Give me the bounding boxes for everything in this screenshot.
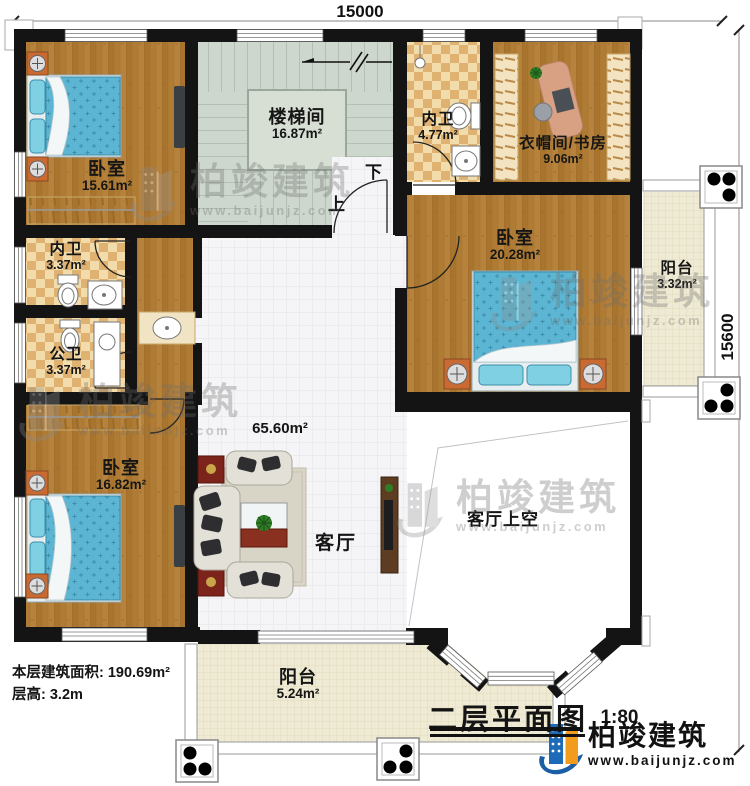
brand-block: 柏竣建筑 www.baijunjz.com <box>588 722 737 768</box>
title-underline-2 <box>430 734 585 737</box>
living-area-value: 65.60m² <box>252 420 308 437</box>
bed-tl <box>27 75 121 157</box>
floor-stats: 本层建筑面积: 190.69m² 层高: 3.2m <box>12 662 170 707</box>
room-label-living: 客厅 <box>315 528 357 555</box>
room-label-balcony-bottom: 阳台5.24m² <box>277 668 320 702</box>
title-underline <box>430 727 582 731</box>
room-label-bedroom-right: 卧室20.28m² <box>490 229 540 263</box>
room-label-cloak-study: 衣帽间/书房9.06m² <box>519 136 607 166</box>
room-label-bedroom-bl: 卧室16.82m² <box>96 459 146 493</box>
bed-right <box>472 271 578 391</box>
floor-height-text: 层高: 3.2m <box>12 684 170 706</box>
floor-plan-page: 15000 15600 楼梯间16.87m² 内卫4.77m² 衣帽间/书房9.… <box>0 0 750 786</box>
room-label-balcony-right: 阳台3.32m² <box>657 261 697 291</box>
room-label-bath-top: 内卫4.77m² <box>418 112 458 142</box>
stairs-up-label: 上 <box>328 190 345 215</box>
room-label-living-void: 客厅上空 <box>467 505 539 530</box>
room-label-bath-left: 内卫3.37m² <box>46 242 86 272</box>
brand-url: www.baijunjz.com <box>588 753 737 768</box>
room-label-stairwell: 楼梯间16.87m² <box>269 108 326 142</box>
dimension-top: 15000 <box>336 2 383 22</box>
floor-area-text: 本层建筑面积: 190.69m² <box>12 662 170 684</box>
room-label-bath-public: 公卫3.37m² <box>46 347 86 377</box>
stairs-down-label: 下 <box>365 158 382 183</box>
dimension-right: 15600 <box>718 313 738 360</box>
plan-title: 二层平面图 <box>428 696 588 738</box>
room-label-bedroom-tl: 卧室15.61m² <box>82 160 132 194</box>
brand-name: 柏竣建筑 <box>588 722 737 750</box>
